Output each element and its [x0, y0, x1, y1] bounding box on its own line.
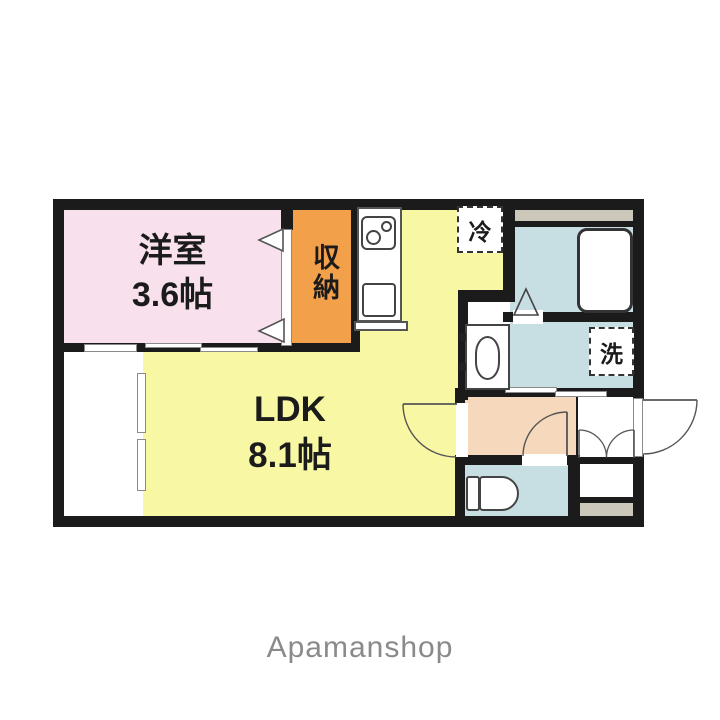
- toilet-door-opening: [522, 454, 567, 466]
- balcony: [64, 352, 143, 516]
- kitchen-sink-icon: [362, 283, 396, 317]
- washing-machine-space: 洗: [589, 327, 634, 376]
- sliding-door-panel: [145, 343, 202, 348]
- wall: [53, 199, 644, 210]
- western-room-name: 洋室: [75, 229, 270, 273]
- closet-door-track: [281, 229, 292, 346]
- wall: [503, 199, 515, 302]
- entrance-porch: [580, 503, 635, 516]
- bathtub-icon: [577, 228, 633, 313]
- window: [137, 373, 146, 433]
- shoe-cabinet: [580, 463, 635, 497]
- floorplan-image: 冷 洗: [0, 0, 720, 720]
- wall: [633, 199, 644, 399]
- ldk-name: LDK: [185, 387, 395, 433]
- window: [84, 344, 137, 352]
- washbasin-icon: [475, 336, 500, 380]
- faucet-mark: [459, 333, 466, 341]
- brand-watermark: Apamanshop: [0, 631, 720, 665]
- western-room-size: 3.6帖: [75, 273, 270, 317]
- bathroom-door-opening: [513, 310, 543, 324]
- western-room-label: 洋室 3.6帖: [75, 229, 270, 317]
- ldk-door-opening: [456, 403, 468, 457]
- wall: [633, 455, 644, 527]
- washer-label: 洗: [600, 335, 623, 369]
- genkan: [578, 395, 635, 457]
- entry-door-arc: [643, 400, 697, 454]
- window: [137, 439, 146, 491]
- wall: [578, 457, 644, 464]
- toilet-tank-icon: [466, 476, 480, 511]
- sliding-door-panel: [555, 391, 607, 397]
- wall: [53, 516, 644, 527]
- ldk-label: LDK 8.1帖: [185, 387, 395, 478]
- entrance-hall: [460, 395, 580, 457]
- wall: [568, 455, 580, 518]
- stove-icon: [361, 216, 396, 250]
- burner-icon: [381, 221, 392, 232]
- sliding-door-panel: [505, 387, 557, 393]
- hall-genkan-divider: [576, 397, 578, 457]
- closet-label: 収納: [305, 243, 344, 303]
- washbasin-unit: [465, 324, 510, 390]
- wall: [281, 210, 293, 230]
- wall: [515, 221, 635, 227]
- refrigerator-label: 冷: [469, 213, 492, 247]
- ldk-size: 8.1帖: [185, 433, 395, 479]
- burner-icon: [366, 230, 381, 245]
- wall: [578, 497, 644, 503]
- kitchen-counter-edge: [354, 321, 408, 331]
- sliding-door-panel: [200, 347, 258, 352]
- entry-door-jamb: [633, 398, 643, 457]
- wall: [455, 455, 465, 518]
- toilet-bowl-icon: [479, 476, 519, 511]
- refrigerator-space: 冷: [457, 206, 503, 253]
- faucet-mark: [459, 363, 466, 371]
- floorplan: 冷 洗: [0, 0, 720, 720]
- wall: [53, 199, 64, 527]
- wall: [455, 388, 465, 404]
